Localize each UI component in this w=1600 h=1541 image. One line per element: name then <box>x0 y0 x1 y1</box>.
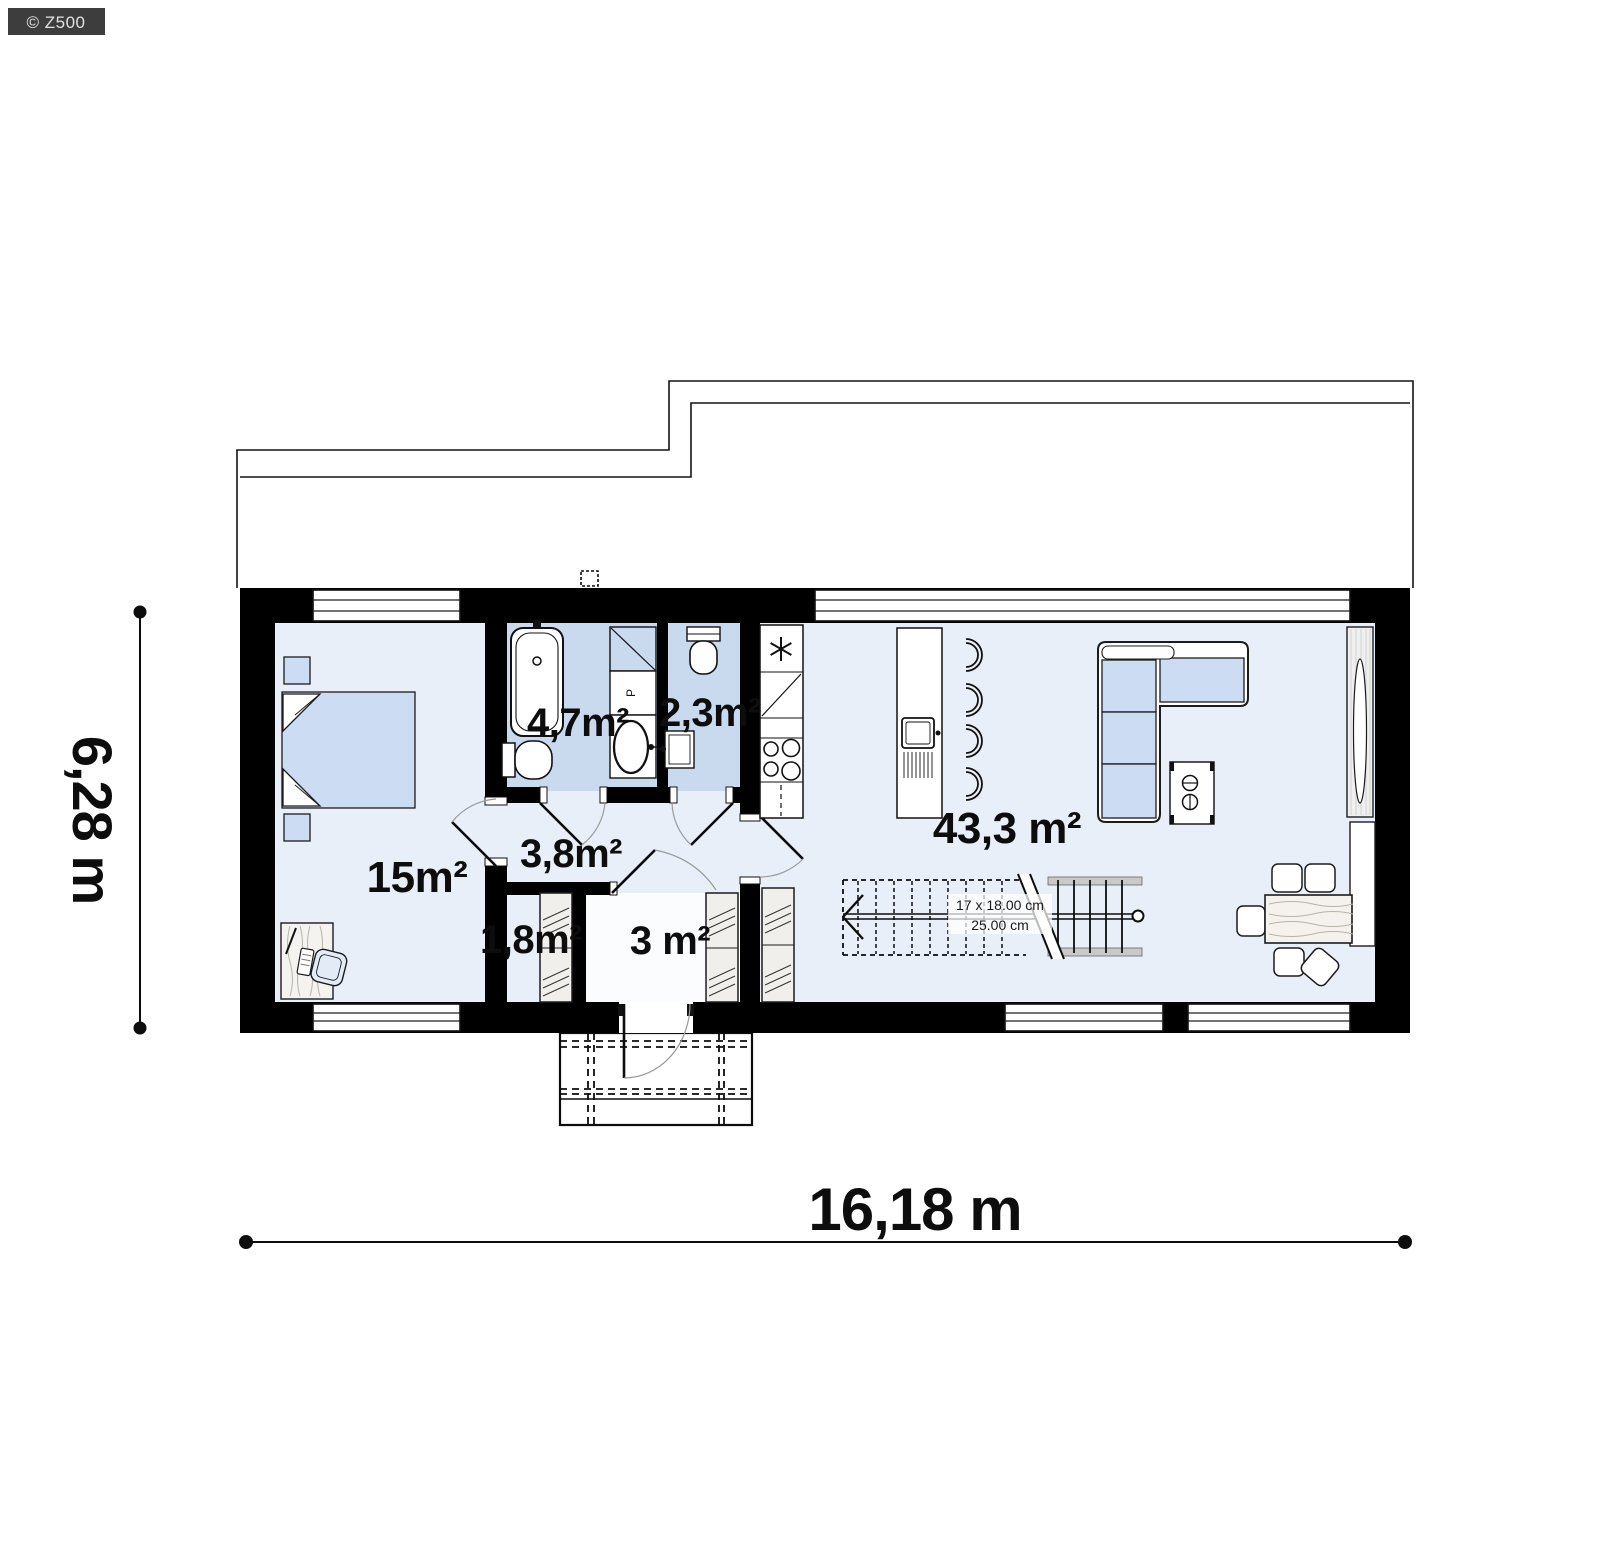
bed <box>282 692 415 808</box>
dimension-height: 6,28 m <box>61 606 146 1035</box>
nightstand <box>284 814 310 841</box>
stair-newel <box>1133 911 1144 922</box>
dimension-width: 16,18 m <box>239 1176 1412 1249</box>
window-living-south-2 <box>1188 1004 1350 1031</box>
entrance-porch <box>560 1033 752 1125</box>
window-living-south-1 <box>1005 1004 1163 1031</box>
stair-tread-label: 25.00 cm <box>971 917 1029 933</box>
floor-plan-svg: P <box>0 0 1600 1541</box>
dining-table <box>1265 895 1353 943</box>
watermark-text: © Z500 <box>27 13 86 32</box>
watermark-badge: © Z500 <box>8 8 105 35</box>
room-label-wc: 2,3m² <box>659 691 761 735</box>
wc-toilet <box>687 627 720 674</box>
coffee-table <box>1170 762 1214 824</box>
wardrobe-unit <box>762 888 794 1002</box>
height-dimension-label: 6,28 m <box>61 736 124 904</box>
dining-chair <box>1305 864 1335 892</box>
cabinet-label: P <box>624 689 638 697</box>
toilet <box>502 741 552 779</box>
room-label-bathroom: 4,7m² <box>527 701 629 745</box>
wardrobe-unit <box>706 893 738 1002</box>
window-living-north <box>815 590 1350 621</box>
dining-chair <box>1274 948 1304 976</box>
window-bedroom-north <box>313 590 460 621</box>
vent-icon <box>581 571 598 586</box>
shower <box>610 627 656 671</box>
kitchen-counter <box>760 625 803 818</box>
room-label-hall: 3,8m² <box>520 832 622 876</box>
room-label-bedroom: 15m² <box>367 853 468 902</box>
roof-outline <box>237 381 1413 588</box>
dining-chair <box>1272 864 1302 892</box>
room-label-living: 43,3 m² <box>933 804 1081 853</box>
width-dimension-label: 16,18 m <box>808 1176 1021 1243</box>
room-label-entry: 3 m² <box>630 919 710 963</box>
console-table <box>1350 822 1375 946</box>
dining-chair <box>1237 906 1265 936</box>
wall-unit <box>1347 627 1373 817</box>
stair-stringer <box>1048 877 1142 885</box>
nightstand <box>284 657 310 684</box>
stair-riser-label: 17 x 18.00 cm <box>956 897 1044 913</box>
kitchen-island <box>897 628 942 818</box>
window-bedroom-south <box>313 1004 460 1031</box>
room-label-wardrobe: 1,8m² <box>480 918 582 962</box>
floor-plan-page: P <box>0 0 1600 1541</box>
